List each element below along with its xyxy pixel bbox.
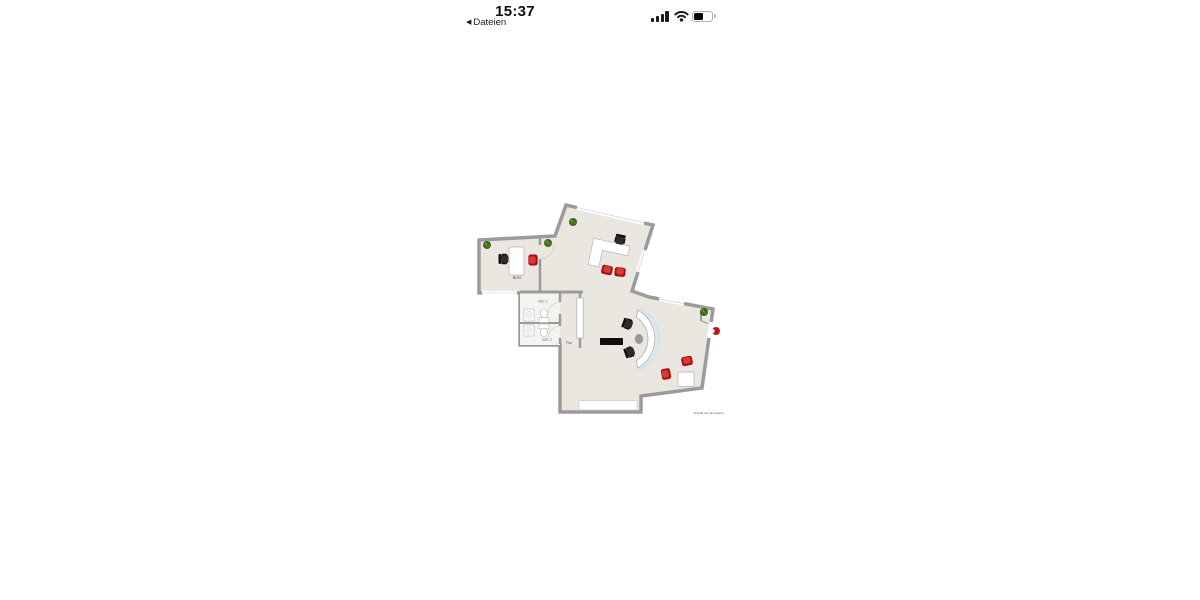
room-label-wc2: WC 2	[542, 338, 552, 342]
battery-fill	[694, 13, 703, 20]
side-table	[678, 372, 694, 387]
back-button[interactable]: ◀ Dateien	[466, 17, 506, 28]
plant-icon	[700, 308, 708, 316]
back-triangle-icon: ◀	[466, 18, 471, 27]
back-app-label: Dateien	[473, 17, 506, 28]
room-label-hallway: Flur	[566, 341, 573, 345]
battery-icon	[692, 11, 716, 22]
red-armchair-icon	[661, 368, 672, 380]
plant-icon	[483, 241, 491, 249]
plant-icon	[544, 239, 552, 247]
room-label-wc1: WC 1	[538, 300, 548, 304]
office-desk	[509, 247, 524, 275]
office-chair-icon	[499, 254, 509, 265]
plant-icon	[569, 218, 577, 226]
sideboard	[600, 338, 623, 345]
hallway-door	[577, 298, 583, 338]
counter-equipment	[635, 334, 643, 344]
floorplan-image[interactable]: Büro WC 1 WC 2 Flur	[473, 198, 727, 420]
room-label-office: Büro	[513, 275, 523, 280]
red-armchair-icon	[614, 267, 626, 277]
entry-window	[579, 401, 637, 411]
watermark-text: Erstellt mit raumplaner	[694, 411, 724, 415]
wifi-icon	[674, 10, 689, 22]
red-armchair-icon	[681, 356, 693, 367]
cellular-signal-icon	[651, 11, 673, 22]
floorplan-drawing: Büro WC 1 WC 2 Flur	[473, 198, 727, 420]
red-armchair-icon	[528, 255, 537, 266]
